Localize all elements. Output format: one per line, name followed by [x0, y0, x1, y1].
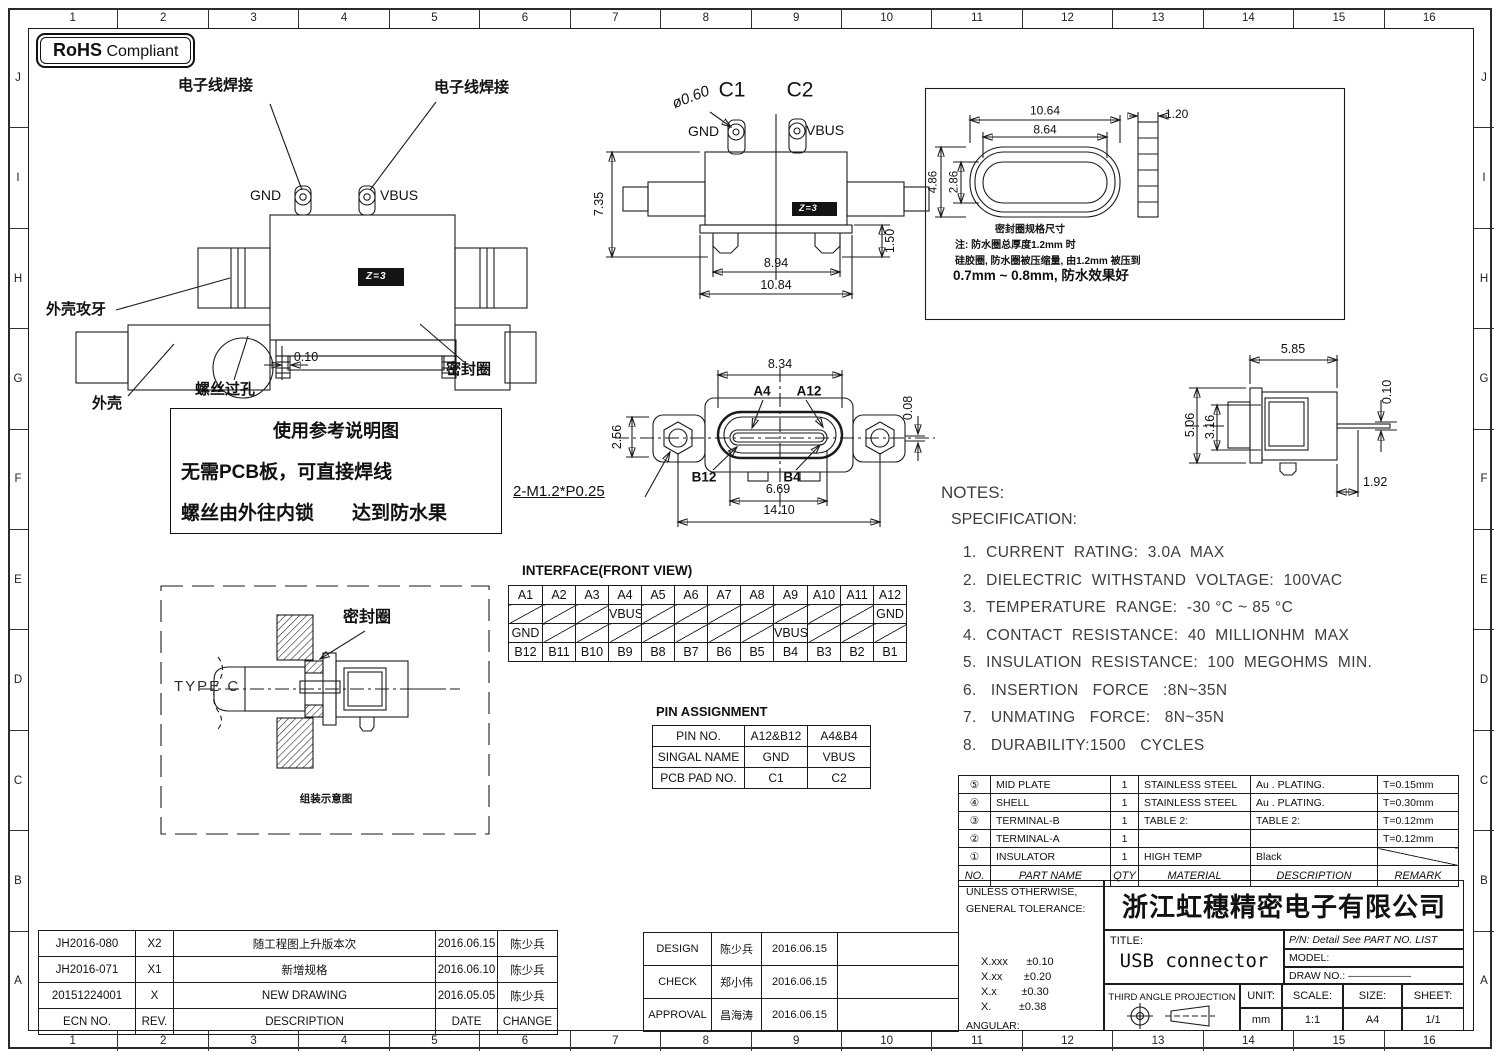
- ruler-letter: B: [1474, 830, 1494, 930]
- table-cell: B9: [609, 643, 642, 662]
- ruler-number: 13: [1112, 8, 1202, 28]
- third-angle-projection-icon: [1105, 985, 1241, 1032]
- table-row: ECN NO.REV.DESCRIPTIONDATECHANGE: [39, 1009, 558, 1035]
- table-cell: 1: [1111, 776, 1139, 794]
- projection-cell: THIRD ANGLE PROJECTION: [1104, 984, 1240, 1031]
- dim-14.10: 14.10: [763, 504, 794, 518]
- seal-note-line3: 0.7mm ~ 0.8mm, 防水效果好: [953, 269, 1129, 284]
- shell-label: 外壳: [92, 396, 122, 413]
- dim-10.84: 10.84: [760, 279, 791, 293]
- notes-subtitle: SPECIFICATION:: [951, 511, 1077, 529]
- table-cell: ECN NO.: [39, 1009, 136, 1035]
- ruler-letter: G: [1474, 328, 1494, 428]
- table-cell: B1: [874, 643, 907, 662]
- size-value: A4: [1343, 1008, 1402, 1031]
- table-cell: 20151224001: [39, 983, 136, 1009]
- table-row: A1A2A3A4A5A6A7A8A9A10A11A12: [509, 586, 907, 605]
- table-cell: PCB PAD NO.: [653, 768, 745, 789]
- table-cell: 2016.06.15: [762, 999, 838, 1032]
- table-cell: 2016.05.05: [436, 983, 498, 1009]
- rohs-bold-text: RoHS: [53, 40, 102, 60]
- sheet-label: SHEET:: [1402, 984, 1464, 1008]
- sheet-value: 1/1: [1402, 1008, 1464, 1031]
- table-cell: Black: [1251, 848, 1378, 866]
- side-view: 5.85 5.06 3.16 0.10 1.92: [1185, 330, 1415, 520]
- dim-0.08: 0.08: [902, 396, 916, 420]
- dim-4.86: 4.86: [928, 171, 941, 193]
- ruler-number: 15: [1293, 1031, 1383, 1051]
- ruler-right: JIHGFEDCBA: [1474, 28, 1494, 1031]
- ruler-number: 3: [208, 8, 298, 28]
- pin-b12-label: B12: [692, 471, 717, 486]
- table-row: DESIGN陈少兵2016.06.15: [644, 933, 959, 966]
- table-cell: [808, 624, 841, 643]
- table-row: ③TERMINAL-B1TABLE 2:TABLE 2:T=0.12mm: [959, 812, 1459, 830]
- unit-value: mm: [1240, 1008, 1282, 1031]
- table-row: 20151224001XNEW DRAWING2016.05.05陈少兵: [39, 983, 558, 1009]
- table-cell: ④: [959, 794, 991, 812]
- title-cell: TITLE: USB connector: [1104, 930, 1284, 984]
- ruler-letter: E: [1474, 529, 1494, 629]
- table-cell: GND: [874, 605, 907, 624]
- table-cell: Au . PLATING.: [1251, 794, 1378, 812]
- bom-table: ⑤MID PLATE1STAINLESS STEELAu . PLATING.T…: [958, 775, 1459, 887]
- dim-0.10: 0.10: [1381, 380, 1395, 404]
- table-cell: 1: [1111, 812, 1139, 830]
- table-cell: [543, 605, 576, 624]
- table-cell: [708, 605, 741, 624]
- ruler-number: 12: [1022, 8, 1112, 28]
- table-cell: JH2016-071: [39, 957, 136, 983]
- ruler-number: 15: [1293, 8, 1383, 28]
- table-cell: B7: [675, 643, 708, 662]
- tolerance-line2: GENERAL TOLERANCE:: [966, 903, 1103, 915]
- table-cell: [841, 624, 874, 643]
- front-view-drawing: [505, 350, 945, 545]
- table-cell: [543, 624, 576, 643]
- table-cell: ③: [959, 812, 991, 830]
- seal-ring-label: 密封圈: [343, 609, 391, 627]
- usage-note-box: 使用参考说明图 无需PCB板，可直接焊线 螺丝由外往内锁 达到防水果: [170, 408, 502, 534]
- table-cell: STAINLESS STEEL: [1139, 794, 1251, 812]
- rohs-badge: RoHS Compliant: [36, 33, 195, 68]
- table-cell: TABLE 2:: [1139, 812, 1251, 830]
- table-row: PIN NO.A12&B12A4&B4: [653, 726, 871, 747]
- table-row: PCB PAD NO.C1C2: [653, 768, 871, 789]
- table-cell: [741, 605, 774, 624]
- table-row: ①INSULATOR1HIGH TEMPBlack: [959, 848, 1459, 866]
- table-cell: JH2016-080: [39, 931, 136, 957]
- table-cell: [1139, 830, 1251, 848]
- pin-assignment-title: PIN ASSIGNMENT: [656, 704, 767, 719]
- front-view: 8.34 A4 A12 2.56 0.08 B12 B4 6.69 14.10 …: [505, 350, 945, 545]
- revision-table: JH2016-080X2随工程图上升版本次2016.06.15陈少兵JH2016…: [38, 930, 558, 1035]
- specification-item: 8. DURABILITY:1500 CYCLES: [963, 732, 1372, 760]
- table-cell: 1: [1111, 794, 1139, 812]
- ruler-number: 16: [1384, 1031, 1474, 1051]
- scale-label: SCALE:: [1282, 984, 1343, 1008]
- title-label: TITLE:: [1110, 935, 1143, 947]
- ruler-number: 2: [117, 8, 207, 28]
- table-row: JH2016-071X1新增规格2016.06.10陈少兵: [39, 957, 558, 983]
- table-cell: [642, 605, 675, 624]
- table-cell: A7: [708, 586, 741, 605]
- wire-solder-label-left: 电子线焊接: [178, 78, 253, 95]
- specification-item: 4. CONTACT RESISTANCE: 40 MILLIONHM MAX: [963, 622, 1372, 650]
- usage-note-line2: 无需PCB板，可直接焊线: [181, 457, 491, 484]
- table-cell: A11: [841, 586, 874, 605]
- ruler-number: 10: [841, 1031, 931, 1051]
- ruler-number: 1: [28, 8, 117, 28]
- table-cell: B2: [841, 643, 874, 662]
- specification-item: 3. TEMPERATURE RANGE: -30 °C ~ 85 °C: [963, 594, 1372, 622]
- ruler-number: 9: [751, 8, 841, 28]
- ruler-number: 8: [660, 1031, 750, 1051]
- scale-value: 1:1: [1282, 1008, 1343, 1031]
- table-cell: DESCRIPTION: [174, 1009, 436, 1035]
- solder-side-view: 电子线焊接 电子线焊接 GND VBUS 外壳攻牙 外壳 螺丝过孔 密封圈 0.…: [38, 78, 538, 410]
- ruler-letter: A: [8, 931, 28, 1031]
- vbus-label: VBUS: [806, 123, 844, 138]
- pin-a12-label: A12: [797, 385, 822, 400]
- ruler-letter: C: [8, 730, 28, 830]
- ruler-letter: F: [8, 429, 28, 529]
- dim-8.34: 8.34: [768, 358, 792, 372]
- table-cell: A4: [609, 586, 642, 605]
- size-label: SIZE:: [1343, 984, 1402, 1008]
- table-cell: [1251, 830, 1378, 848]
- table-cell: DATE: [436, 1009, 498, 1035]
- dim-8.94: 8.94: [764, 257, 788, 271]
- table-cell: TABLE 2:: [1251, 812, 1378, 830]
- dim-2.56: 2.56: [611, 425, 625, 449]
- table-cell: APPROVAL: [644, 999, 712, 1032]
- ruler-letter: E: [8, 529, 28, 629]
- wire-solder-label-right: 电子线焊接: [434, 80, 509, 97]
- seal-detail-view: 10.64 8.64 1.20 4.86 2.86 密封圈规格尺寸 注: 防水圈…: [925, 88, 1345, 320]
- table-cell: STAINLESS STEEL: [1139, 776, 1251, 794]
- table-cell: CHANGE: [498, 1009, 558, 1035]
- ruler-number: 4: [298, 8, 388, 28]
- tolerance-linear-item: X.x ±0.30: [981, 985, 1103, 1000]
- ruler-letter: I: [8, 127, 28, 227]
- table-cell: REV.: [136, 1009, 174, 1035]
- table-cell: TERMINAL-B: [991, 812, 1111, 830]
- interface-table: A1A2A3A4A5A6A7A8A9A10A11A12VBUSGNDGNDVBU…: [508, 585, 907, 662]
- table-cell: A6: [675, 586, 708, 605]
- table-cell: A12: [874, 586, 907, 605]
- table-cell: VBUS: [609, 605, 642, 624]
- table-cell: [609, 624, 642, 643]
- pad-c1-label: C1: [719, 78, 746, 101]
- ruler-letter: J: [1474, 28, 1494, 127]
- seal-ring-label: 密封圈: [446, 362, 491, 379]
- ruler-number: 13: [1112, 1031, 1202, 1051]
- table-cell: C1: [745, 768, 808, 789]
- ruler-letter: J: [8, 28, 28, 127]
- table-cell: GND: [509, 624, 543, 643]
- table-cell: Au . PLATING.: [1251, 776, 1378, 794]
- brand-logo: Z=3: [366, 271, 387, 282]
- table-cell: 郑小伟: [712, 966, 762, 999]
- dim-1.50: 1.50: [884, 229, 898, 253]
- table-cell: NEW DRAWING: [174, 983, 436, 1009]
- table-cell: [509, 605, 543, 624]
- specification-item: 7. UNMATING FORCE: 8N~35N: [963, 704, 1372, 732]
- table-cell: A8: [741, 586, 774, 605]
- table-row: CHECK郑小伟2016.06.15: [644, 966, 959, 999]
- draw-no-value: ——————: [1348, 970, 1411, 982]
- table-cell: ①: [959, 848, 991, 866]
- dim-1.20: 1.20: [1165, 108, 1188, 121]
- side-view-drawing: [1185, 330, 1415, 520]
- table-cell: A5: [642, 586, 675, 605]
- table-cell: T=0.15mm: [1378, 776, 1459, 794]
- table-cell: [838, 999, 959, 1032]
- tolerance-linear-item: X.xxx ±0.10: [981, 955, 1103, 970]
- table-cell: [642, 624, 675, 643]
- ruler-number: 14: [1203, 1031, 1293, 1051]
- ruler-number: 7: [570, 1031, 660, 1051]
- table-cell: MID PLATE: [991, 776, 1111, 794]
- assembly-view: TYPE C 密封圈 组装示意图: [160, 585, 490, 835]
- table-row: ④SHELL1STAINLESS STEELAu . PLATING.T=0.3…: [959, 794, 1459, 812]
- table-cell: 陈少兵: [498, 957, 558, 983]
- ruler-number: 16: [1384, 8, 1474, 28]
- ruler-number: 14: [1203, 8, 1293, 28]
- dim-10.64: 10.64: [1030, 104, 1060, 117]
- thread-spec-label: 2-M1.2*P0.25: [513, 484, 605, 501]
- dim-2.86: 2.86: [949, 171, 962, 193]
- table-cell: [1378, 848, 1459, 866]
- table-cell: T=0.12mm: [1378, 830, 1459, 848]
- table-cell: 陈少兵: [498, 983, 558, 1009]
- dim-1.92: 1.92: [1363, 476, 1387, 490]
- table-cell: [675, 605, 708, 624]
- table-cell: A9: [774, 586, 808, 605]
- table-cell: A2: [543, 586, 576, 605]
- pad-c2-label: C2: [787, 78, 814, 101]
- table-cell: VBUS: [808, 747, 871, 768]
- table-cell: B4: [774, 643, 808, 662]
- unit-label: UNIT:: [1240, 984, 1282, 1008]
- table-cell: SHELL: [991, 794, 1111, 812]
- table-cell: [675, 624, 708, 643]
- table-cell: ⑤: [959, 776, 991, 794]
- shell-tap-label: 外壳攻牙: [46, 302, 106, 319]
- table-cell: [576, 605, 609, 624]
- table-cell: B11: [543, 643, 576, 662]
- table-row: JH2016-080X2随工程图上升版本次2016.06.15陈少兵: [39, 931, 558, 957]
- tolerance-angular-list: X.xx ±1°X.x ±3°X. ±5°: [981, 1036, 1103, 1059]
- table-cell: VBUS: [774, 624, 808, 643]
- dim-5.85: 5.85: [1281, 343, 1305, 357]
- tolerance-linear-list: X.xxx ±0.10X.xx ±0.20X.x ±0.30X. ±0.38: [981, 919, 1103, 1015]
- table-cell: 2016.06.15: [762, 966, 838, 999]
- ruler-number: 8: [660, 8, 750, 28]
- table-cell: C2: [808, 768, 871, 789]
- ruler-letter: G: [8, 328, 28, 428]
- table-cell: B6: [708, 643, 741, 662]
- table-cell: SINGAL NAME: [653, 747, 745, 768]
- table-cell: 随工程图上升版本次: [174, 931, 436, 957]
- table-cell: PIN NO.: [653, 726, 745, 747]
- dim-3.16: 3.16: [1204, 415, 1218, 439]
- table-cell: TERMINAL-A: [991, 830, 1111, 848]
- table-row: SINGAL NAMEGNDVBUS: [653, 747, 871, 768]
- notes-title: NOTES:: [941, 483, 1004, 503]
- gnd-pin-label: GND: [250, 188, 281, 203]
- tolerance-block: UNLESS OTHERWISE, GENERAL TOLERANCE: X.x…: [958, 880, 1104, 1031]
- table-cell: A4&B4: [808, 726, 871, 747]
- usage-note-title: 使用参考说明图: [181, 417, 491, 443]
- table-cell: [841, 605, 874, 624]
- ruler-number: 7: [570, 8, 660, 28]
- table-cell: B12: [509, 643, 543, 662]
- ruler-letter: D: [8, 629, 28, 729]
- specification-item: 5. INSULATION RESISTANCE: 100 MEGOHMS MI…: [963, 649, 1372, 677]
- company-name: 浙江虹穗精密电子有限公司: [1104, 880, 1464, 930]
- top-view: ø0.60 C1 C2 GND VBUS 7.35 8.94 10.84 1.5…: [560, 80, 940, 318]
- table-cell: 昌海涛: [712, 999, 762, 1032]
- table-row: VBUSGND: [509, 605, 907, 624]
- draw-no-label: DRAW NO.:: [1289, 970, 1348, 982]
- dim-8.64: 8.64: [1033, 123, 1056, 136]
- table-cell: 2016.06.15: [762, 933, 838, 966]
- ruler-number: 10: [841, 8, 931, 28]
- interface-table-title: INTERFACE(FRONT VIEW): [522, 563, 692, 578]
- ruler-letter: C: [1474, 730, 1494, 830]
- ruler-number: 5: [389, 8, 479, 28]
- tolerance-angular-label: ANGULAR:: [966, 1020, 1103, 1032]
- assembly-caption: 组装示意图: [300, 794, 353, 806]
- table-row: ②TERMINAL-A1T=0.12mm: [959, 830, 1459, 848]
- gnd-label: GND: [688, 124, 719, 139]
- table-cell: X: [136, 983, 174, 1009]
- table-cell: B3: [808, 643, 841, 662]
- table-cell: CHECK: [644, 966, 712, 999]
- brand-logo: Z=3: [799, 204, 818, 214]
- table-cell: [576, 624, 609, 643]
- table-cell: A10: [808, 586, 841, 605]
- specification-item: 6. INSERTION FORCE :8N~35N: [963, 677, 1372, 705]
- ruler-number: 9: [751, 1031, 841, 1051]
- ruler-letter: I: [1474, 127, 1494, 227]
- specification-list: 1. CURRENT RATING: 3.0A MAX2. DIELECTRIC…: [963, 539, 1372, 759]
- usage-note-line3: 螺丝由外往内锁 达到防水果: [181, 498, 491, 525]
- dim-6.69: 6.69: [766, 483, 790, 497]
- table-cell: B5: [741, 643, 774, 662]
- vbus-pin-label: VBUS: [380, 188, 418, 203]
- table-cell: 陈少兵: [498, 931, 558, 957]
- pin-assignment-table: PIN NO.A12&B12A4&B4SINGAL NAMEGNDVBUSPCB…: [652, 725, 871, 789]
- ruler-number: 11: [931, 8, 1021, 28]
- specification-item: 1. CURRENT RATING: 3.0A MAX: [963, 539, 1372, 567]
- table-cell: X1: [136, 957, 174, 983]
- table-cell: 2016.06.15: [436, 931, 498, 957]
- table-cell: HIGH TEMP: [1139, 848, 1251, 866]
- tolerance-linear-item: X.xx ±0.20: [981, 970, 1103, 985]
- table-cell: 1: [1111, 830, 1139, 848]
- seal-note-line1: 注: 防水圈总厚度1.2mm 时: [955, 240, 1076, 251]
- table-cell: DESIGN: [644, 933, 712, 966]
- table-cell: [774, 605, 808, 624]
- table-cell: A3: [576, 586, 609, 605]
- drawing-title: USB connector: [1120, 950, 1269, 972]
- table-cell: 陈少兵: [712, 933, 762, 966]
- ruler-left: JIHGFEDCBA: [8, 28, 28, 1031]
- dim-5.06: 5.06: [1184, 413, 1198, 437]
- screw-hole-label: 螺丝过孔: [195, 382, 255, 399]
- table-cell: ②: [959, 830, 991, 848]
- table-cell: GND: [745, 747, 808, 768]
- ruler-letter: A: [1474, 931, 1494, 1031]
- table-cell: [838, 966, 959, 999]
- ruler-letter: F: [1474, 429, 1494, 529]
- specification-item: 2. DIELECTRIC WITHSTAND VOLTAGE: 100VAC: [963, 567, 1372, 595]
- part-number-line: P/N: Detail See PART NO. LIST: [1284, 930, 1464, 949]
- ruler-top: 12345678910111213141516: [28, 8, 1474, 28]
- dim-7.35: 7.35: [593, 192, 607, 216]
- table-row: ⑤MID PLATE1STAINLESS STEELAu . PLATING.T…: [959, 776, 1459, 794]
- table-cell: INSULATOR: [991, 848, 1111, 866]
- ruler-letter: H: [1474, 228, 1494, 328]
- ruler-letter: H: [8, 228, 28, 328]
- table-cell: [874, 624, 907, 643]
- table-cell: 1: [1111, 848, 1139, 866]
- draw-no-cell: DRAW NO.: ——————: [1284, 967, 1464, 984]
- table-cell: B10: [576, 643, 609, 662]
- table-cell: [808, 605, 841, 624]
- top-view-drawing: [560, 80, 940, 318]
- table-cell: [741, 624, 774, 643]
- pin-a4-label: A4: [753, 385, 770, 400]
- tolerance-linear-item: X. ±0.38: [981, 1000, 1103, 1015]
- ruler-letter: B: [8, 830, 28, 930]
- table-cell: T=0.12mm: [1378, 812, 1459, 830]
- rohs-rest-text: Compliant: [106, 43, 178, 60]
- type-c-plug-label: TYPE C: [174, 679, 240, 696]
- ruler-letter: D: [1474, 629, 1494, 729]
- table-cell: A1: [509, 586, 543, 605]
- seal-detail-caption: 密封圈规格尺寸: [995, 225, 1065, 236]
- table-row: APPROVAL昌海涛2016.06.15: [644, 999, 959, 1032]
- ruler-number: 6: [479, 8, 569, 28]
- table-cell: [838, 933, 959, 966]
- table-cell: [708, 624, 741, 643]
- tolerance-line1: UNLESS OTHERWISE,: [966, 886, 1103, 898]
- model-label: MODEL:: [1284, 949, 1464, 967]
- approval-table: DESIGN陈少兵2016.06.15CHECK郑小伟2016.06.15APP…: [643, 932, 959, 1032]
- table-cell: B8: [642, 643, 675, 662]
- table-cell: 2016.06.10: [436, 957, 498, 983]
- drawing-sheet: 12345678910111213141516 1234567891011121…: [0, 0, 1502, 1059]
- seal-note-line2: 硅胶圈, 防水圈被压缩量, 由1.2mm 被压到: [955, 256, 1141, 267]
- table-row: GNDVBUS: [509, 624, 907, 643]
- table-cell: X2: [136, 931, 174, 957]
- table-cell: A12&B12: [745, 726, 808, 747]
- seal-detail-drawing: [925, 88, 1345, 320]
- dim-0.10: 0.10: [294, 351, 318, 365]
- table-cell: T=0.30mm: [1378, 794, 1459, 812]
- table-cell: 新增规格: [174, 957, 436, 983]
- table-row: B12B11B10B9B8B7B6B5B4B3B2B1: [509, 643, 907, 662]
